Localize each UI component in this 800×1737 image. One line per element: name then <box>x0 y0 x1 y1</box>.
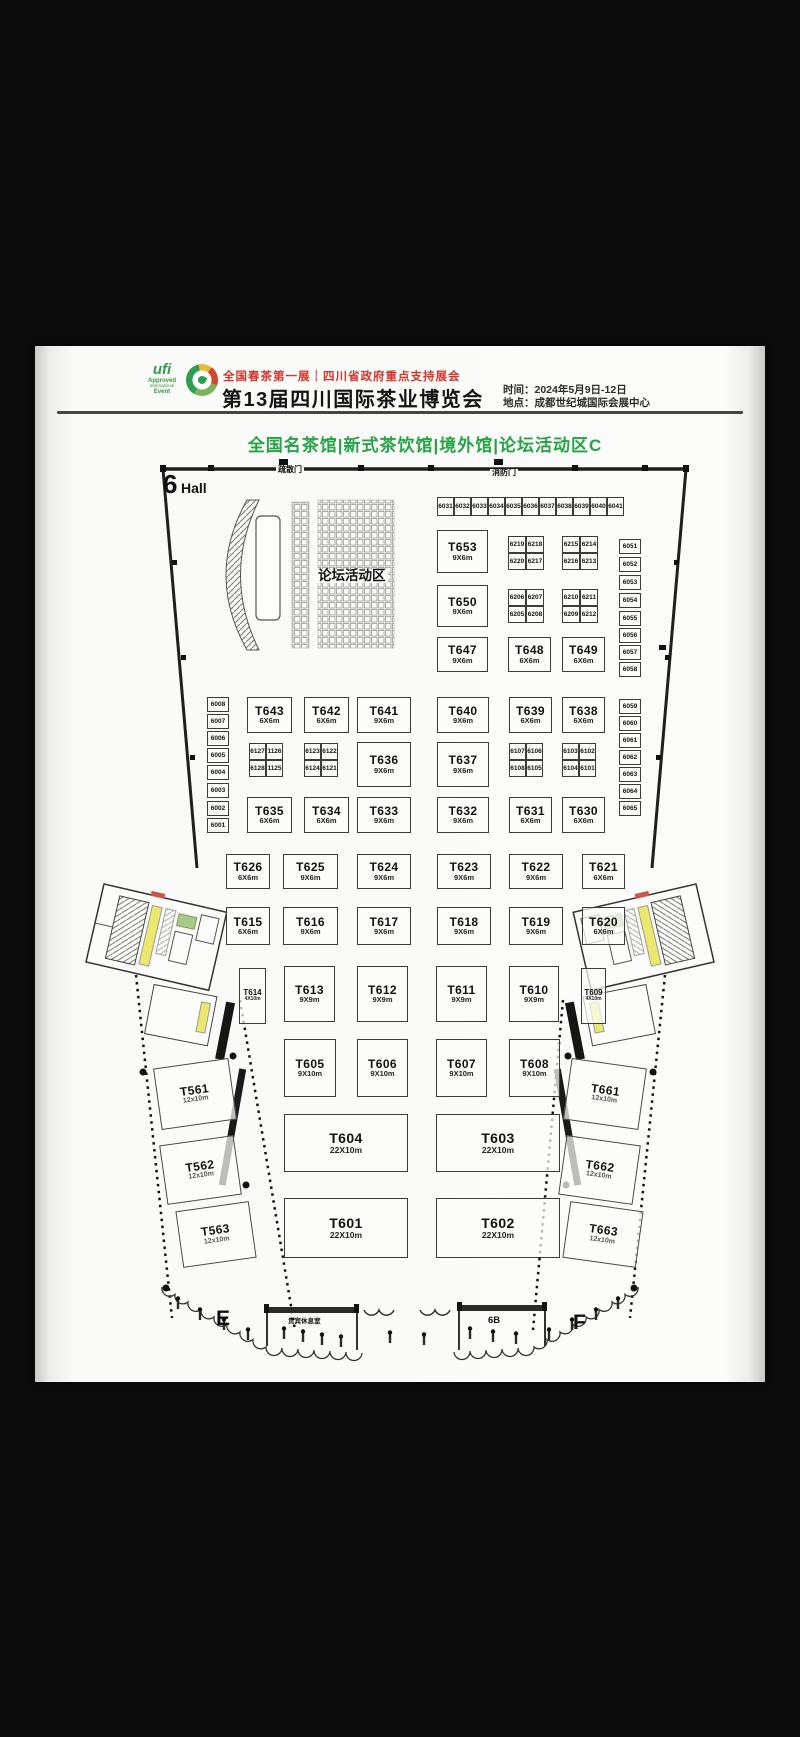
booth-6101: 6101 <box>579 760 596 777</box>
booth-T611: T6119X9m <box>436 966 487 1022</box>
expo-time: 时间：2024年5月9日-12日 <box>503 384 650 397</box>
booth-T613: T6139X9m <box>284 966 335 1022</box>
booth-T621: T6216X6m <box>582 854 625 889</box>
booth-6123: 6123 <box>304 743 321 760</box>
booth-6041: 6041 <box>607 497 624 516</box>
booth-T647: T6479X6m <box>437 637 488 672</box>
booth-T614: T6144X10m <box>239 968 266 1024</box>
booth-6212: 6212 <box>580 606 598 623</box>
booth-6219: 6219 <box>508 536 526 553</box>
booth-T561: T56112x10m <box>153 1058 237 1130</box>
zone-f-label: F <box>573 1312 586 1333</box>
booth-6051: 6051 <box>619 539 641 554</box>
booth-T609: T6094X10m <box>581 968 606 1024</box>
booth-6063: 6063 <box>619 767 641 782</box>
booth-T603: T60322X10m <box>436 1114 560 1172</box>
expo-meta: 时间：2024年5月9日-12日 地点：成都世纪城国际会展中心 <box>503 384 650 410</box>
booth-T606: T6069X10m <box>357 1039 408 1097</box>
booth-6218: 6218 <box>526 536 544 553</box>
booth-T642: T6426X6m <box>304 697 349 733</box>
booth-T630: T6306X6m <box>562 797 605 833</box>
booth-T610: T6109X9m <box>509 966 559 1022</box>
booth-T650: T6509X6m <box>437 585 488 627</box>
booth-6058: 6058 <box>619 662 641 677</box>
booth-6208: 6208 <box>526 606 544 623</box>
booth-6127: 6127 <box>249 743 266 760</box>
booth-T653: T6539X6m <box>437 530 488 573</box>
booth-6057: 6057 <box>619 645 641 660</box>
booth-6209: 6209 <box>562 606 580 623</box>
booth-T663: T66312x10m <box>562 1201 643 1268</box>
booth-6035: 6035 <box>505 497 522 516</box>
booth-6006: 6006 <box>207 731 229 746</box>
screenshot-root: T6539X6mT6509X6mT6479X6mT6486X6mT6496X6m… <box>0 0 800 1737</box>
expo-venue: 地点：成都世纪城国际会展中心 <box>503 397 650 410</box>
booth-6105: 6105 <box>526 760 543 777</box>
booth-6002: 6002 <box>207 801 229 816</box>
booth-T624: T6249X6m <box>357 854 411 889</box>
forum-area-label: 论坛活动区 <box>316 569 388 583</box>
booth-6056: 6056 <box>619 628 641 643</box>
booth-T661: T66112x10m <box>563 1058 647 1130</box>
vip-room-label: 贵宾休息室 <box>288 1319 321 1326</box>
booth-6055: 6055 <box>619 611 641 626</box>
booth-6065: 6065 <box>619 801 641 816</box>
booth-T636: T6369X6m <box>357 742 411 787</box>
booth-T643: T6436X6m <box>247 697 292 733</box>
booth-6004: 6004 <box>207 765 229 780</box>
expo-tagline: 全国春茶第一展｜四川省政府重点支持展会 <box>223 368 461 384</box>
booth-6037: 6037 <box>539 497 556 516</box>
booth-T648: T6486X6m <box>508 637 551 672</box>
booth-T623: T6239X6m <box>437 854 491 889</box>
booth-6061: 6061 <box>619 733 641 748</box>
booth-6059: 6059 <box>619 699 641 714</box>
booth-6207: 6207 <box>526 589 544 606</box>
booth-6060: 6060 <box>619 716 641 731</box>
booth-T622: T6229X6m <box>509 854 563 889</box>
booth-6038: 6038 <box>556 497 573 516</box>
booth-6213: 6213 <box>580 553 598 570</box>
booth-T618: T6189X6m <box>437 907 491 945</box>
booth-T604: T60422X10m <box>284 1114 408 1172</box>
booth-T617: T6179X6m <box>357 907 411 945</box>
booth-T639: T6396X6m <box>509 697 552 733</box>
booth-layer: T6539X6mT6509X6mT6479X6mT6486X6mT6496X6m… <box>0 0 800 1737</box>
booth-T625: T6259X6m <box>283 854 338 889</box>
booth-6121: 6121 <box>321 760 338 777</box>
booth-1126: 1126 <box>266 743 283 760</box>
booth-6124: 6124 <box>304 760 321 777</box>
booth-T662: T66212x10m <box>558 1135 641 1205</box>
booth-6062: 6062 <box>619 750 641 765</box>
booth-T633: T6339X6m <box>357 797 411 833</box>
door-fire-label: 消防门 <box>490 469 518 477</box>
booth-T634: T6346X6m <box>304 797 349 833</box>
booth-6205: 6205 <box>508 606 526 623</box>
booth-6220: 6220 <box>508 553 526 570</box>
booth-T620: T6206X6m <box>582 907 625 945</box>
booth-T632: T6329X6m <box>437 797 489 833</box>
booth-T608: T6089X10m <box>509 1039 560 1097</box>
door-evac-label: 疏散门 <box>276 466 304 474</box>
booth-6122: 6122 <box>321 743 338 760</box>
booth-T640: T6409X6m <box>437 697 489 733</box>
booth-6128: 6128 <box>249 760 266 777</box>
plan-subtitle: 全国名茶馆|新式茶饮馆|境外馆|论坛活动区C <box>140 431 710 456</box>
booth-6033: 6033 <box>471 497 488 516</box>
booth-T631: T6316X6m <box>509 797 552 833</box>
booth-6217: 6217 <box>526 553 544 570</box>
booth-6031: 6031 <box>437 497 454 516</box>
booth-6052: 6052 <box>619 557 641 572</box>
booth-6008: 6008 <box>207 697 229 712</box>
booth-T641: T6419X6m <box>357 697 411 733</box>
zone-6b-label: 6B <box>488 1316 500 1326</box>
expo-logo-icon <box>186 364 218 396</box>
hall-word: Hall <box>181 481 207 495</box>
booth-6036: 6036 <box>522 497 539 516</box>
booth-6053: 6053 <box>619 575 641 590</box>
booth-6001: 6001 <box>207 818 229 833</box>
booth-6007: 6007 <box>207 714 229 729</box>
booth-T605: T6059X10m <box>284 1039 336 1097</box>
booth-T615: T6156X6m <box>226 907 270 945</box>
booth-6034: 6034 <box>488 497 505 516</box>
booth-6102: 6102 <box>579 743 596 760</box>
booth-6032: 6032 <box>454 497 471 516</box>
booth-T649: T6496X6m <box>562 637 605 672</box>
booth-6040: 6040 <box>590 497 607 516</box>
booth-6206: 6206 <box>508 589 526 606</box>
booth-T626: T6266X6m <box>226 854 270 889</box>
booth-6216: 6216 <box>562 553 580 570</box>
booth-6108: 6108 <box>509 760 526 777</box>
ufi-logo-line: Event <box>141 389 183 395</box>
booth-6064: 6064 <box>619 784 641 799</box>
booth-T635: T6356X6m <box>247 797 292 833</box>
booth-T601: T60122X10m <box>284 1198 408 1258</box>
booth-6214: 6214 <box>580 536 598 553</box>
booth-T612: T6129X9m <box>357 966 408 1022</box>
booth-T616: T6169X6m <box>283 907 338 945</box>
expo-title: 第13届四川国际茶业博览会 <box>222 383 484 412</box>
booth-6106: 6106 <box>526 743 543 760</box>
booth-6039: 6039 <box>573 497 590 516</box>
booth-6211: 6211 <box>580 589 598 606</box>
booth-6107: 6107 <box>509 743 526 760</box>
booth-6003: 6003 <box>207 783 229 798</box>
booth-T562: T56212x10m <box>159 1135 242 1205</box>
booth-T602: T60222X10m <box>436 1198 560 1258</box>
booth-6054: 6054 <box>619 593 641 608</box>
booth-T638: T6386X6m <box>562 697 605 733</box>
booth-T563: T56312x10m <box>175 1201 256 1268</box>
booth-6103: 6103 <box>562 743 579 760</box>
booth-6210: 6210 <box>562 589 580 606</box>
booth-6104: 6104 <box>562 760 579 777</box>
booth-T637: T6379X6m <box>437 742 489 787</box>
zone-e-label: E <box>216 1308 230 1329</box>
booth-T619: T6199X6m <box>509 907 563 945</box>
ufi-logo: ufi Approved International Event <box>141 362 183 395</box>
booth-T607: T6079X10m <box>436 1039 487 1097</box>
ufi-logo-line: ufi <box>141 362 183 377</box>
booth-6215: 6215 <box>562 536 580 553</box>
booth-1125: 1125 <box>266 760 283 777</box>
booth-6005: 6005 <box>207 748 229 763</box>
header-divider <box>57 411 743 414</box>
hall-number: 6 <box>163 471 177 497</box>
